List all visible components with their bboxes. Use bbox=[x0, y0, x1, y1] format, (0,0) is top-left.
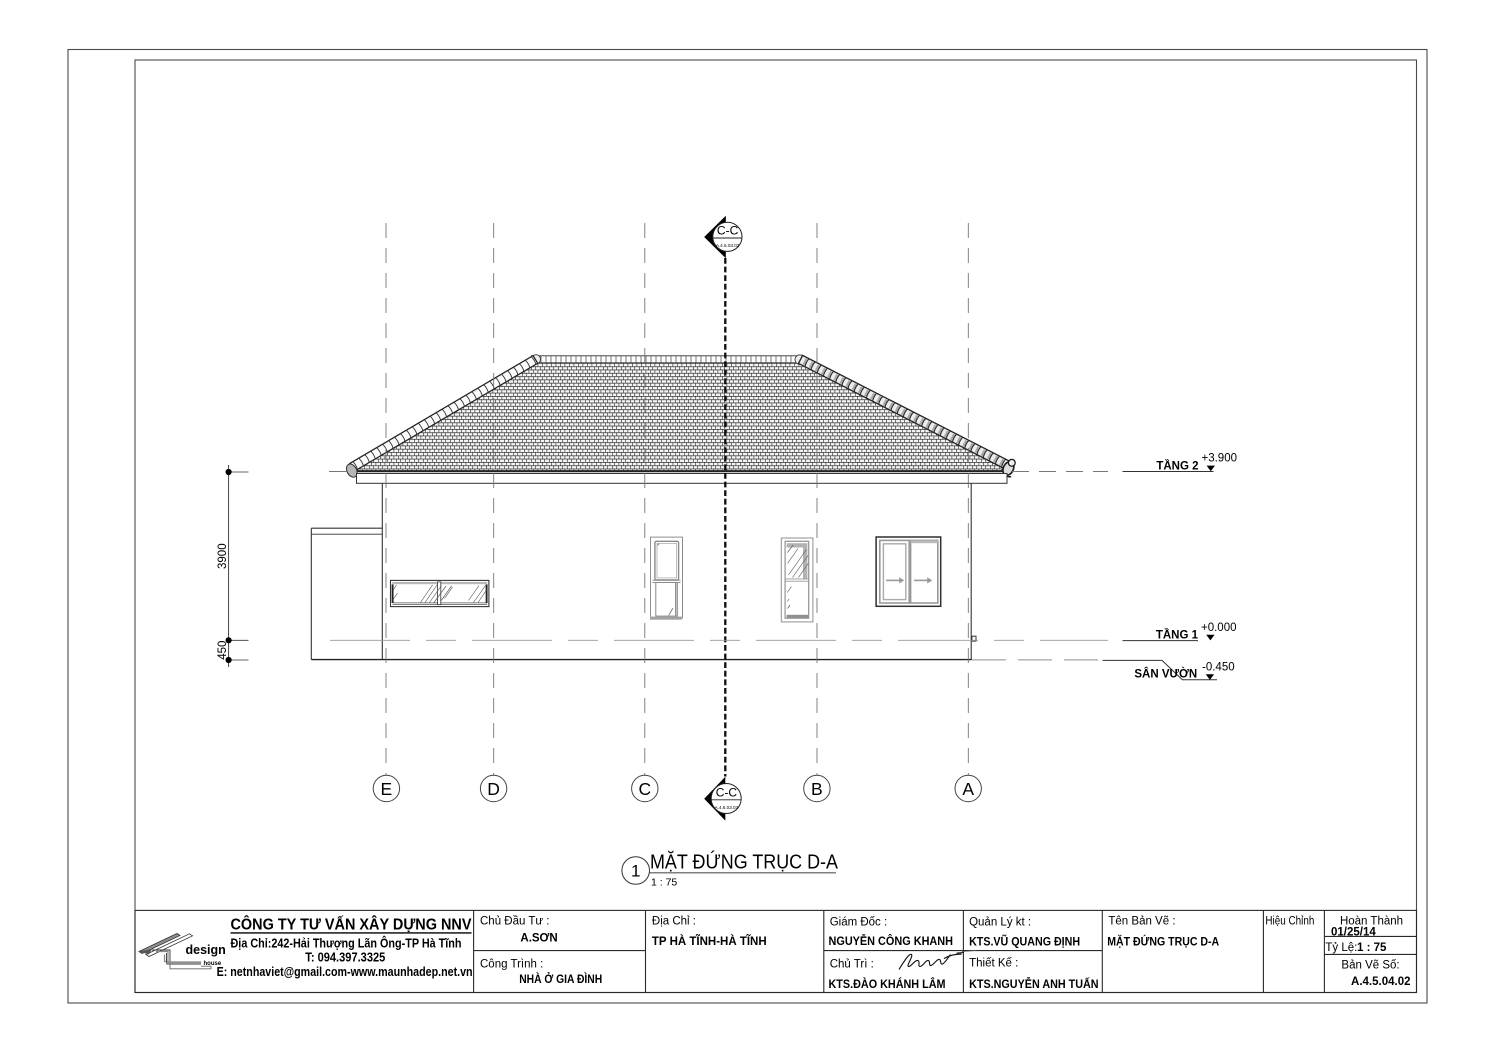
svg-text:TẦNG 2: TẦNG 2 bbox=[1156, 460, 1198, 473]
svg-text:1 : 75: 1 : 75 bbox=[1357, 942, 1387, 954]
svg-text:C-C: C-C bbox=[717, 223, 739, 237]
svg-text:1 : 75: 1 : 75 bbox=[651, 877, 677, 889]
svg-text:Tên Bản Vẽ :: Tên Bản Vẽ : bbox=[1108, 916, 1175, 928]
svg-text:MẶT ĐỨNG TRỤC D-A: MẶT ĐỨNG TRỤC D-A bbox=[1107, 936, 1219, 949]
svg-text:T: 094.397.3325: T: 094.397.3325 bbox=[305, 950, 385, 964]
svg-text:A: A bbox=[962, 779, 974, 799]
svg-text:KTS.NGUYỄN ANH TUẤN: KTS.NGUYỄN ANH TUẤN bbox=[969, 978, 1099, 991]
svg-text:A.4.5.04.02: A.4.5.04.02 bbox=[1351, 976, 1410, 988]
svg-text:Hiệu Chỉnh: Hiệu Chỉnh bbox=[1265, 916, 1314, 928]
svg-text:Chủ Đầu Tư :: Chủ Đầu Tư : bbox=[480, 916, 550, 928]
svg-text:Thiết Kế :: Thiết Kế : bbox=[969, 958, 1018, 970]
svg-text:B: B bbox=[811, 779, 823, 799]
svg-text:Địa Chỉ :: Địa Chỉ : bbox=[652, 916, 696, 928]
svg-text:Giám Đốc :: Giám Đốc : bbox=[830, 916, 888, 928]
svg-text:TP HÀ TĨNH-HÀ TĨNH: TP HÀ TĨNH-HÀ TĨNH bbox=[652, 935, 767, 948]
svg-text:E: E bbox=[381, 779, 393, 799]
svg-text:Quản Lý kt :: Quản Lý kt : bbox=[969, 916, 1031, 928]
svg-text:3900: 3900 bbox=[217, 543, 229, 569]
svg-text:design: design bbox=[186, 943, 226, 957]
svg-text:Công Trình :: Công Trình : bbox=[480, 959, 543, 971]
svg-text:SÂN VƯỜN: SÂN VƯỜN bbox=[1134, 668, 1197, 681]
svg-text:A.4.6.03.03: A.4.6.03.03 bbox=[715, 805, 739, 810]
svg-text:A.SƠN: A.SƠN bbox=[520, 933, 557, 945]
svg-text:Chủ Trì :: Chủ Trì : bbox=[830, 958, 874, 970]
svg-text:Địa Chỉ:242-Hải Thượng Lãn Ông: Địa Chỉ:242-Hải Thượng Lãn Ông-TP Hà Tĩn… bbox=[231, 935, 462, 950]
svg-text:NHÀ Ở GIA ĐÌNH: NHÀ Ở GIA ĐÌNH bbox=[519, 973, 602, 986]
svg-text:CÔNG TY TƯ VẤN XÂY DỰNG NNV: CÔNG TY TƯ VẤN XÂY DỰNG NNV bbox=[231, 914, 472, 933]
svg-text:KTS.ĐÀO KHÁNH LÂM: KTS.ĐÀO KHÁNH LÂM bbox=[829, 978, 946, 991]
svg-text:KTS.VŨ QUANG ĐỊNH: KTS.VŨ QUANG ĐỊNH bbox=[969, 936, 1080, 949]
svg-text:450: 450 bbox=[217, 641, 229, 660]
svg-text:E: netnhaviet@gmail.com-www.ma: E: netnhaviet@gmail.com-www.maunhadep.ne… bbox=[217, 965, 473, 979]
svg-text:D: D bbox=[487, 779, 500, 799]
svg-text:A.4.6.03.03: A.4.6.03.03 bbox=[716, 243, 740, 248]
svg-text:Tỷ Lệ:: Tỷ Lệ: bbox=[1325, 942, 1357, 954]
svg-text:+0.000: +0.000 bbox=[1201, 622, 1237, 634]
svg-text:01/25/14: 01/25/14 bbox=[1331, 926, 1376, 938]
svg-text:+3.900: +3.900 bbox=[1202, 453, 1238, 465]
svg-text:1: 1 bbox=[631, 862, 640, 881]
svg-text:-0.450: -0.450 bbox=[1202, 662, 1235, 674]
svg-text:TẦNG 1: TẦNG 1 bbox=[1156, 629, 1199, 642]
svg-text:MẶT ĐỨNG TRỤC D-A: MẶT ĐỨNG TRỤC D-A bbox=[650, 851, 839, 874]
svg-text:C: C bbox=[638, 779, 651, 799]
svg-text:C-C: C-C bbox=[716, 785, 738, 799]
svg-text:Bản Vẽ Số:: Bản Vẽ Số: bbox=[1341, 959, 1399, 971]
svg-text:NGUYỄN CÔNG KHANH: NGUYỄN CÔNG KHANH bbox=[829, 935, 954, 948]
